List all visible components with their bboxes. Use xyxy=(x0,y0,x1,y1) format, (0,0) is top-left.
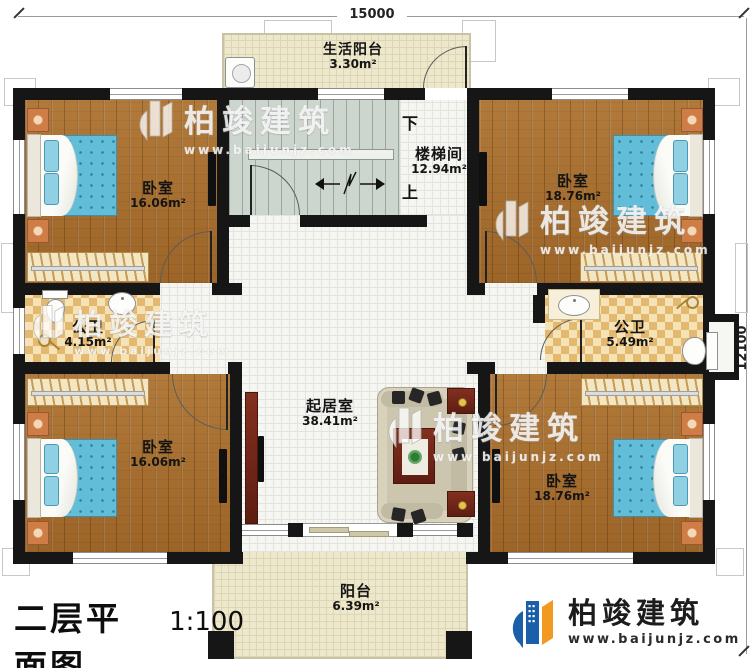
wall-stair-bottom xyxy=(300,215,427,227)
wall-bath-left-bottom xyxy=(13,362,170,374)
bed-pillow xyxy=(673,444,688,474)
bed-pillow xyxy=(44,476,59,506)
window-living-balcony xyxy=(413,524,457,536)
wall-bath-left-bottom xyxy=(228,362,242,374)
balcony-pillar xyxy=(446,631,472,659)
washing-machine-icon xyxy=(225,57,255,88)
bed-pillow xyxy=(673,173,688,205)
bed-headboard xyxy=(689,438,703,518)
wall-bedroom-tr-left xyxy=(467,100,479,283)
window-bath-left xyxy=(13,308,25,354)
brand-logo: 柏竣建筑 www.baijunjz.com xyxy=(508,594,741,652)
toilet-bowl xyxy=(682,337,706,365)
stair-direction-arrows xyxy=(312,170,388,198)
toilet-tank xyxy=(42,290,68,299)
nightstand xyxy=(27,108,49,132)
window-bedroom-tl-left xyxy=(13,140,25,214)
drawing-scale: 1:100 xyxy=(169,607,244,637)
brand-text: 柏竣建筑 www.baijunjz.com xyxy=(568,599,741,647)
room-label-bath-right: 公卫 5.49m² xyxy=(580,319,680,350)
bed-headboard xyxy=(689,134,703,217)
eave-outline xyxy=(735,243,748,313)
bed-pillow xyxy=(44,140,59,172)
window-bedroom-tr-right xyxy=(703,140,715,214)
nightstand xyxy=(681,219,703,243)
sliding-door-panel xyxy=(309,527,349,533)
tv-icon xyxy=(208,152,216,206)
sliding-door-living xyxy=(303,523,397,537)
brand-website: www.baijunjz.com xyxy=(568,632,741,647)
side-table xyxy=(447,388,475,414)
stair-up-label: 上 xyxy=(397,179,423,203)
room-label-bedroom-tr: 卧室 18.76m² xyxy=(523,173,623,204)
wall-bath-left-top xyxy=(212,283,242,295)
door-leaf xyxy=(465,46,467,88)
nightstand xyxy=(681,108,703,132)
lamp-dot xyxy=(458,398,467,407)
window-bedroom-br-right xyxy=(703,424,715,500)
room-label-bedroom-br: 卧室 18.76m² xyxy=(512,473,612,504)
tv-icon xyxy=(219,449,227,503)
wall-bedroom-br-left xyxy=(478,374,490,552)
dimension-width-label: 15000 xyxy=(337,6,407,24)
stair-down-label: 下 xyxy=(397,110,423,134)
wall-living-pillar xyxy=(288,523,303,537)
nightstand xyxy=(27,412,49,436)
sink-icon xyxy=(108,292,136,315)
wardrobe-rail xyxy=(585,391,699,396)
room-label-life-balcony: 生活阳台 3.30m² xyxy=(293,42,413,72)
room-label-balcony: 阳台 6.39m² xyxy=(306,583,406,614)
tv-icon xyxy=(258,436,264,482)
wall-bedroom-tl-right xyxy=(217,100,229,283)
side-table xyxy=(447,491,475,517)
nightstand xyxy=(27,521,49,545)
door-leaf xyxy=(226,374,228,430)
door-leaf xyxy=(250,165,252,215)
coffee-table xyxy=(393,428,435,484)
lamp-dot xyxy=(458,501,467,510)
room-label-bedroom-tl: 卧室 16.06m² xyxy=(108,180,208,211)
room-label-living: 起居室 38.41m² xyxy=(280,398,380,429)
bed-pillow xyxy=(44,444,59,474)
wardrobe xyxy=(27,378,149,406)
plant-icon xyxy=(408,450,422,464)
eave-outline xyxy=(716,548,744,576)
bed-headboard xyxy=(27,134,41,217)
title-block: 二层平面图 1:100 本层建筑面积: 152.90m² 层高: 3.3m xyxy=(14,592,244,668)
faucet-dot xyxy=(121,297,124,300)
window-bedroom-bl-left xyxy=(13,424,25,500)
brand-name: 柏竣建筑 xyxy=(568,599,741,628)
room-label-bath-left: 公卫 4.15m² xyxy=(38,319,138,350)
wall-living-pillar xyxy=(457,523,473,537)
wardrobe-rail xyxy=(584,266,698,271)
bed-pillow xyxy=(673,140,688,172)
page-title: 二层平面图 xyxy=(14,592,155,668)
bed-pillow xyxy=(673,476,688,506)
window-bedroom-tl-top xyxy=(110,88,182,100)
floor-plan-canvas: 15000 12100 生活阳台 3.30m² 阳台 6.39m² 下 上 xyxy=(0,0,750,668)
sliding-door-panel xyxy=(349,531,389,537)
shower-head-icon xyxy=(686,296,699,309)
window-stairwell-top xyxy=(318,88,384,100)
wardrobe-rail xyxy=(31,391,145,396)
brand-logo-icon xyxy=(508,594,558,652)
wall-bath-left-top xyxy=(13,283,160,295)
nightstand xyxy=(681,521,703,545)
dimension-tick xyxy=(738,7,749,18)
nightstand xyxy=(681,412,703,436)
sink-icon xyxy=(558,295,590,316)
tv-cabinet xyxy=(245,392,258,524)
washing-machine-drum xyxy=(232,64,251,83)
wall-bath-right-stub xyxy=(533,295,545,323)
door-leaf xyxy=(485,231,487,283)
tv-icon xyxy=(492,449,500,503)
wardrobe xyxy=(580,252,702,282)
toilet-tank xyxy=(706,332,718,370)
bed-pillow xyxy=(44,173,59,205)
bed-headboard xyxy=(27,438,41,518)
wall-bedroom-bl-right xyxy=(230,374,242,552)
sofa-cushion xyxy=(392,391,405,404)
nightstand xyxy=(27,219,49,243)
wall-bath-right-top xyxy=(467,283,485,295)
wardrobe-rail xyxy=(31,266,145,271)
sofa-cushion xyxy=(391,507,406,522)
tv-icon xyxy=(479,152,487,206)
window-bedroom-tr-top xyxy=(552,88,628,100)
title-row: 二层平面图 1:100 xyxy=(14,592,244,668)
door-leaf xyxy=(210,231,212,283)
wardrobe xyxy=(27,252,149,282)
window-bedroom-bl-bottom xyxy=(73,552,167,564)
window-bedroom-br-bottom xyxy=(508,552,633,564)
wall-stair-bottom xyxy=(229,215,250,227)
sofa-cushion xyxy=(452,421,466,435)
door-leaf xyxy=(495,374,497,426)
window-living-balcony xyxy=(242,524,288,536)
wall-living-pillar xyxy=(397,523,413,537)
wall-bath-right-bottom xyxy=(467,362,495,374)
door-gap-stair-balcony xyxy=(425,88,467,100)
door-leaf xyxy=(153,320,155,362)
room-label-bedroom-bl: 卧室 16.06m² xyxy=(108,439,208,470)
faucet-dot xyxy=(573,299,576,302)
wardrobe xyxy=(581,378,703,406)
stair-handrail xyxy=(248,149,394,160)
